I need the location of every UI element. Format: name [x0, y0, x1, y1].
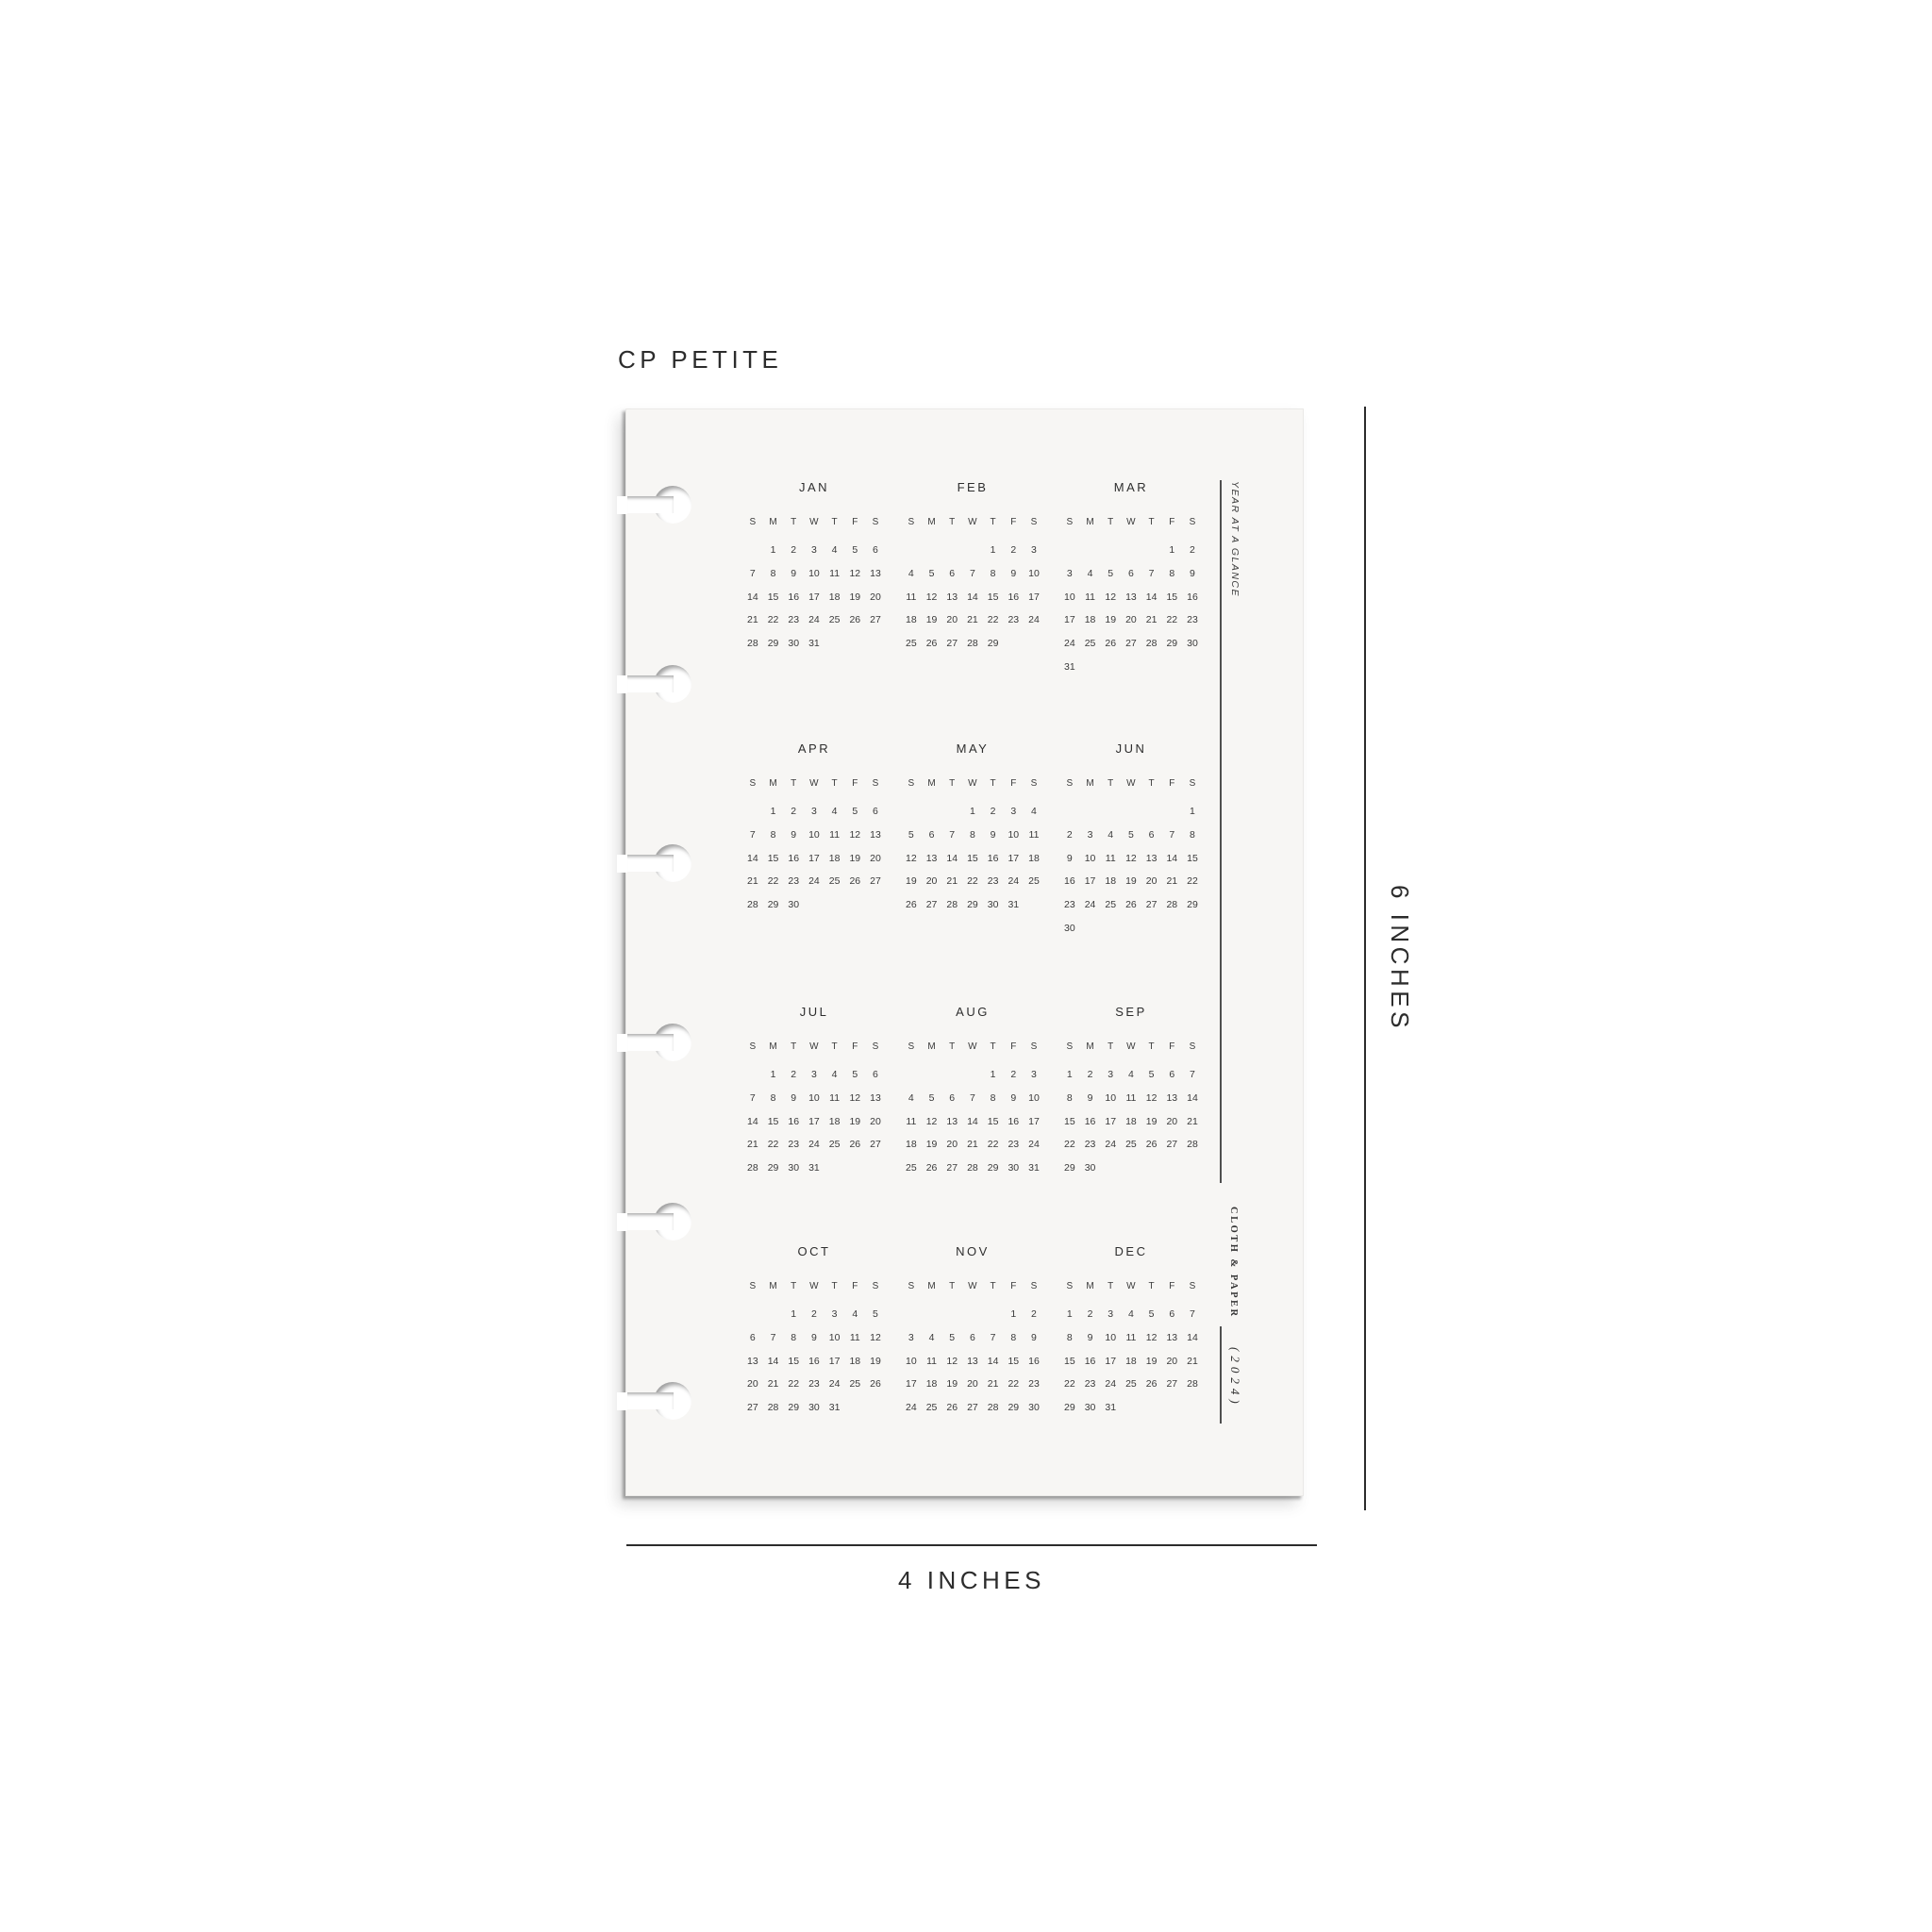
date-grid: 1234567891011121314151617181920212223242…	[901, 1303, 1044, 1419]
date-cell: 31	[1100, 1396, 1121, 1420]
date-cell: 11	[901, 585, 922, 608]
date-cell	[941, 1303, 962, 1326]
weekday-cell: S	[1182, 771, 1203, 795]
date-cell	[922, 800, 942, 824]
date-cell: 19	[1121, 870, 1141, 893]
weekday-cell: S	[865, 1274, 886, 1298]
date-cell: 5	[865, 1303, 886, 1326]
date-cell: 30	[1182, 632, 1203, 656]
weekday-cell: S	[901, 509, 922, 534]
date-cell: 6	[865, 800, 886, 824]
date-cell	[1161, 800, 1182, 824]
date-cell	[865, 1157, 886, 1180]
page-title-vertical: YEAR AT A GLANCE	[1229, 481, 1241, 597]
date-cell: 12	[922, 585, 942, 608]
weekday-cell: F	[844, 509, 865, 534]
date-cell: 27	[865, 870, 886, 893]
date-cell: 14	[1182, 1326, 1203, 1350]
weekday-cell: T	[1141, 509, 1162, 534]
weekday-cell: M	[922, 1274, 942, 1298]
date-cell: 10	[804, 1087, 824, 1110]
width-dimension-line	[626, 1544, 1317, 1546]
date-cell: 21	[1141, 608, 1162, 632]
weekday-cell: T	[1141, 1034, 1162, 1058]
date-cell: 18	[824, 585, 845, 608]
date-cell: 2	[983, 800, 1004, 824]
date-cell: 5	[1141, 1063, 1162, 1087]
weekday-header-row: SMTWTFS	[1059, 1034, 1203, 1058]
weekday-header-row: SMTWTFS	[901, 1274, 1044, 1298]
date-cell	[1141, 800, 1162, 824]
date-cell: 29	[763, 893, 784, 917]
weekday-cell: S	[1059, 771, 1080, 795]
weekday-cell: S	[1024, 509, 1044, 534]
date-cell	[962, 1303, 983, 1326]
weekday-cell: F	[1003, 1274, 1024, 1298]
date-cell: 26	[844, 1133, 865, 1157]
weekday-cell: W	[1121, 509, 1141, 534]
date-cell: 30	[1003, 1157, 1024, 1180]
date-cell: 12	[844, 562, 865, 586]
date-cell: 21	[1182, 1109, 1203, 1133]
date-grid: 1234567891011121314151617181920212223242…	[901, 539, 1044, 655]
date-cell: 21	[742, 1133, 763, 1157]
weekday-header-row: SMTWTFS	[1059, 771, 1203, 795]
weekday-cell: S	[865, 509, 886, 534]
date-cell: 1	[1182, 800, 1203, 824]
date-cell: 4	[901, 562, 922, 586]
month-title: OCT	[742, 1245, 886, 1258]
weekday-cell: S	[1182, 1274, 1203, 1298]
weekday-header-row: SMTWTFS	[742, 771, 886, 795]
date-cell: 6	[1121, 562, 1141, 586]
date-cell: 25	[844, 1373, 865, 1396]
year-label-vertical: (2024)	[1227, 1347, 1242, 1408]
date-cell: 2	[1059, 824, 1080, 847]
sidebar-rule-top	[1220, 480, 1222, 1183]
date-cell: 16	[783, 1109, 804, 1133]
weekday-cell: F	[1161, 1034, 1182, 1058]
date-cell: 24	[1059, 632, 1080, 656]
date-cell	[1100, 800, 1121, 824]
date-cell: 3	[804, 800, 824, 824]
date-cell: 19	[1141, 1349, 1162, 1373]
date-cell: 19	[941, 1373, 962, 1396]
date-cell	[1121, 539, 1141, 562]
date-cell: 22	[763, 608, 784, 632]
weekday-cell: F	[1161, 509, 1182, 534]
punch-slot	[625, 1392, 674, 1409]
planner-page: JANSMTWTFS123456789101112131415161718192…	[625, 408, 1304, 1496]
date-cell: 6	[742, 1326, 763, 1350]
date-cell: 15	[783, 1349, 804, 1373]
date-cell: 15	[1161, 585, 1182, 608]
date-cell: 8	[1003, 1326, 1024, 1350]
date-cell: 17	[1100, 1349, 1121, 1373]
date-cell: 30	[804, 1396, 824, 1420]
date-cell: 27	[962, 1396, 983, 1420]
month-title: MAR	[1059, 481, 1203, 494]
date-cell: 17	[804, 846, 824, 870]
weekday-cell: T	[983, 771, 1004, 795]
date-cell: 31	[804, 632, 824, 656]
month-feb: FEBSMTWTFS123456789101112131415161718192…	[901, 481, 1044, 655]
date-cell: 30	[983, 893, 1004, 917]
date-cell: 27	[742, 1396, 763, 1420]
date-cell: 23	[1024, 1373, 1044, 1396]
weekday-cell: T	[941, 509, 962, 534]
date-cell	[1182, 1396, 1203, 1420]
date-cell: 13	[962, 1349, 983, 1373]
date-cell: 4	[824, 539, 845, 562]
weekday-cell: W	[804, 771, 824, 795]
date-cell: 12	[1141, 1087, 1162, 1110]
weekday-cell: W	[962, 771, 983, 795]
weekday-header-row: SMTWTFS	[901, 771, 1044, 795]
date-cell: 1	[1161, 539, 1182, 562]
date-cell	[742, 800, 763, 824]
date-cell: 1	[763, 539, 784, 562]
date-cell	[901, 539, 922, 562]
weekday-header-row: SMTWTFS	[742, 509, 886, 534]
date-cell	[1100, 539, 1121, 562]
date-cell: 6	[941, 1087, 962, 1110]
date-grid: 1234567891011121314151617181920212223242…	[1059, 800, 1203, 940]
date-cell: 7	[1182, 1063, 1203, 1087]
date-cell: 11	[824, 824, 845, 847]
date-cell: 8	[1182, 824, 1203, 847]
weekday-cell: S	[1024, 1274, 1044, 1298]
weekday-cell: M	[1080, 1274, 1101, 1298]
date-cell: 9	[783, 562, 804, 586]
date-cell: 26	[1141, 1373, 1162, 1396]
date-grid: 1234567891011121314151617181920212223242…	[1059, 539, 1203, 678]
date-cell: 18	[1121, 1349, 1141, 1373]
punch-slot	[625, 675, 674, 692]
weekday-cell: T	[783, 1034, 804, 1058]
date-cell: 4	[922, 1326, 942, 1350]
date-cell: 24	[804, 608, 824, 632]
date-cell	[1182, 1157, 1203, 1180]
date-cell: 7	[941, 824, 962, 847]
weekday-cell: T	[1100, 771, 1121, 795]
date-cell: 3	[1080, 824, 1101, 847]
date-cell: 24	[1100, 1373, 1121, 1396]
date-cell: 6	[1141, 824, 1162, 847]
month-title: JUL	[742, 1006, 886, 1019]
date-cell: 18	[901, 1133, 922, 1157]
weekday-cell: F	[1003, 771, 1024, 795]
date-cell: 19	[922, 608, 942, 632]
date-cell: 29	[983, 632, 1004, 656]
date-cell	[865, 1396, 886, 1420]
weekday-cell: F	[1161, 771, 1182, 795]
date-cell: 17	[804, 585, 824, 608]
date-cell: 16	[1059, 870, 1080, 893]
date-cell: 18	[1024, 846, 1044, 870]
date-cell: 19	[1141, 1109, 1162, 1133]
date-cell: 31	[804, 1157, 824, 1180]
month-title: FEB	[901, 481, 1044, 494]
date-cell: 15	[1059, 1349, 1080, 1373]
date-cell: 25	[824, 870, 845, 893]
date-cell: 3	[804, 539, 824, 562]
date-cell: 21	[962, 608, 983, 632]
date-cell: 9	[783, 1087, 804, 1110]
weekday-cell: T	[1100, 1274, 1121, 1298]
date-cell: 29	[763, 1157, 784, 1180]
width-dimension-label: 4 INCHES	[626, 1566, 1317, 1595]
date-cell: 3	[901, 1326, 922, 1350]
date-cell: 1	[962, 800, 983, 824]
date-cell: 24	[1100, 1133, 1121, 1157]
date-cell: 25	[1121, 1373, 1141, 1396]
date-cell: 28	[1141, 632, 1162, 656]
month-title: JUN	[1059, 742, 1203, 756]
date-cell	[1059, 800, 1080, 824]
date-cell: 1	[1059, 1063, 1080, 1087]
date-cell: 2	[1003, 1063, 1024, 1087]
date-cell	[1024, 632, 1044, 656]
date-cell: 15	[763, 585, 784, 608]
date-cell: 11	[901, 1109, 922, 1133]
date-cell: 26	[1141, 1133, 1162, 1157]
date-cell: 10	[1100, 1326, 1121, 1350]
date-cell: 13	[865, 824, 886, 847]
date-cell: 17	[1100, 1109, 1121, 1133]
date-cell: 4	[1024, 800, 1044, 824]
date-cell: 12	[1121, 846, 1141, 870]
weekday-cell: S	[865, 1034, 886, 1058]
weekday-header-row: SMTWTFS	[901, 1034, 1044, 1058]
date-cell: 10	[1003, 824, 1024, 847]
date-cell	[1141, 916, 1162, 940]
date-cell: 19	[901, 870, 922, 893]
date-cell: 10	[804, 824, 824, 847]
date-cell: 18	[922, 1373, 942, 1396]
date-cell: 28	[742, 893, 763, 917]
date-cell: 20	[1121, 608, 1141, 632]
date-cell: 24	[804, 870, 824, 893]
date-cell	[922, 1303, 942, 1326]
date-cell: 2	[1080, 1303, 1101, 1326]
date-cell: 20	[865, 846, 886, 870]
date-cell: 25	[1121, 1133, 1141, 1157]
date-cell: 18	[824, 846, 845, 870]
weekday-cell: M	[1080, 509, 1101, 534]
date-grid: 1234567891011121314151617181920212223242…	[742, 800, 886, 916]
date-cell: 20	[941, 608, 962, 632]
date-cell: 8	[1161, 562, 1182, 586]
date-cell: 14	[742, 585, 763, 608]
date-cell: 17	[1059, 608, 1080, 632]
date-cell: 26	[922, 1157, 942, 1180]
date-cell: 18	[901, 608, 922, 632]
date-cell: 31	[1003, 893, 1024, 917]
date-cell: 22	[962, 870, 983, 893]
date-cell: 2	[1024, 1303, 1044, 1326]
date-cell: 30	[1080, 1157, 1101, 1180]
date-cell	[1141, 1157, 1162, 1180]
date-cell: 25	[824, 1133, 845, 1157]
date-cell: 13	[1161, 1326, 1182, 1350]
date-cell	[1024, 893, 1044, 917]
weekday-cell: T	[824, 771, 845, 795]
date-cell: 11	[1080, 585, 1101, 608]
date-cell: 5	[922, 562, 942, 586]
date-cell: 14	[962, 1109, 983, 1133]
weekday-cell: S	[901, 1034, 922, 1058]
date-cell: 22	[783, 1373, 804, 1396]
date-cell: 30	[783, 893, 804, 917]
date-cell: 11	[824, 1087, 845, 1110]
date-cell: 6	[922, 824, 942, 847]
date-cell: 25	[901, 1157, 922, 1180]
month-jul: JULSMTWTFS123456789101112131415161718192…	[742, 1006, 886, 1179]
weekday-cell: W	[804, 1034, 824, 1058]
date-cell: 15	[1182, 846, 1203, 870]
weekday-cell: S	[742, 771, 763, 795]
punch-edge-gap	[617, 1213, 627, 1231]
date-cell: 20	[1141, 870, 1162, 893]
date-cell: 4	[844, 1303, 865, 1326]
date-cell: 7	[1161, 824, 1182, 847]
weekday-cell: S	[865, 771, 886, 795]
date-cell: 8	[962, 824, 983, 847]
weekday-cell: W	[1121, 771, 1141, 795]
date-cell: 27	[865, 1133, 886, 1157]
date-cell	[742, 1303, 763, 1326]
date-cell: 29	[783, 1396, 804, 1420]
date-cell: 12	[844, 1087, 865, 1110]
month-title: SEP	[1059, 1006, 1203, 1019]
date-cell: 5	[844, 800, 865, 824]
date-cell: 1	[983, 1063, 1004, 1087]
date-cell: 21	[983, 1373, 1004, 1396]
month-may: MAYSMTWTFS123456789101112131415161718192…	[901, 742, 1044, 916]
date-cell: 20	[865, 1109, 886, 1133]
weekday-cell: T	[1100, 1034, 1121, 1058]
date-cell: 8	[1059, 1087, 1080, 1110]
date-cell	[983, 1303, 1004, 1326]
date-cell: 17	[1003, 846, 1024, 870]
date-cell: 10	[1080, 846, 1101, 870]
date-cell: 9	[1024, 1326, 1044, 1350]
date-cell: 11	[1024, 824, 1044, 847]
date-cell: 17	[824, 1349, 845, 1373]
date-cell: 12	[901, 846, 922, 870]
date-cell: 29	[962, 893, 983, 917]
date-cell: 15	[983, 1109, 1004, 1133]
weekday-cell: S	[901, 771, 922, 795]
date-cell: 8	[983, 1087, 1004, 1110]
punch-slot	[625, 855, 674, 872]
date-cell	[804, 893, 824, 917]
height-dimension-line	[1364, 407, 1366, 1510]
date-cell	[941, 539, 962, 562]
date-cell: 20	[1161, 1349, 1182, 1373]
date-cell: 19	[844, 846, 865, 870]
date-cell: 19	[1100, 608, 1121, 632]
date-cell	[1121, 1157, 1141, 1180]
date-cell: 24	[1003, 870, 1024, 893]
weekday-cell: T	[983, 1034, 1004, 1058]
date-cell: 24	[824, 1373, 845, 1396]
date-cell: 12	[844, 824, 865, 847]
date-cell: 30	[1059, 916, 1080, 940]
date-cell: 6	[865, 1063, 886, 1087]
date-cell	[742, 539, 763, 562]
date-cell: 20	[941, 1133, 962, 1157]
weekday-cell: S	[742, 509, 763, 534]
month-sep: SEPSMTWTFS123456789101112131415161718192…	[1059, 1006, 1203, 1179]
weekday-cell: T	[1141, 771, 1162, 795]
date-cell: 18	[1121, 1109, 1141, 1133]
date-cell: 10	[804, 562, 824, 586]
weekday-cell: W	[962, 509, 983, 534]
date-cell: 4	[1080, 562, 1101, 586]
date-cell: 5	[922, 1087, 942, 1110]
date-cell: 7	[742, 1087, 763, 1110]
month-jun: JUNSMTWTFS123456789101112131415161718192…	[1059, 742, 1203, 940]
date-cell: 23	[783, 608, 804, 632]
date-cell: 19	[865, 1349, 886, 1373]
date-cell: 11	[824, 562, 845, 586]
date-cell: 23	[1003, 608, 1024, 632]
date-cell: 13	[922, 846, 942, 870]
weekday-cell: S	[901, 1274, 922, 1298]
date-cell: 5	[941, 1326, 962, 1350]
date-cell: 21	[962, 1133, 983, 1157]
weekday-cell: S	[1024, 1034, 1044, 1058]
date-cell: 14	[1182, 1087, 1203, 1110]
weekday-cell: T	[783, 771, 804, 795]
weekday-cell: M	[763, 771, 784, 795]
date-cell: 22	[1003, 1373, 1024, 1396]
date-cell: 12	[941, 1349, 962, 1373]
date-cell	[865, 632, 886, 656]
date-cell: 9	[1080, 1087, 1101, 1110]
punch-slot	[625, 1034, 674, 1051]
weekday-cell: M	[922, 771, 942, 795]
date-cell: 22	[1059, 1373, 1080, 1396]
date-cell: 24	[901, 1396, 922, 1420]
date-grid: 1234567891011121314151617181920212223242…	[1059, 1063, 1203, 1179]
date-cell: 5	[844, 539, 865, 562]
date-cell: 17	[901, 1373, 922, 1396]
date-grid: 1234567891011121314151617181920212223242…	[742, 1063, 886, 1179]
date-cell: 28	[763, 1396, 784, 1420]
weekday-cell: S	[1024, 771, 1044, 795]
date-cell: 5	[901, 824, 922, 847]
weekday-cell: T	[824, 509, 845, 534]
date-cell	[1080, 800, 1101, 824]
date-cell	[1080, 539, 1101, 562]
date-cell: 3	[1100, 1063, 1121, 1087]
date-cell: 28	[742, 632, 763, 656]
date-cell	[922, 1063, 942, 1087]
date-cell: 13	[1161, 1087, 1182, 1110]
date-cell: 4	[1121, 1063, 1141, 1087]
date-cell: 15	[1059, 1109, 1080, 1133]
date-cell: 12	[1141, 1326, 1162, 1350]
date-cell: 16	[1003, 1109, 1024, 1133]
date-cell	[901, 1063, 922, 1087]
weekday-cell: M	[763, 1034, 784, 1058]
date-cell: 23	[1080, 1373, 1101, 1396]
date-cell	[1100, 655, 1121, 678]
date-cell: 21	[742, 608, 763, 632]
